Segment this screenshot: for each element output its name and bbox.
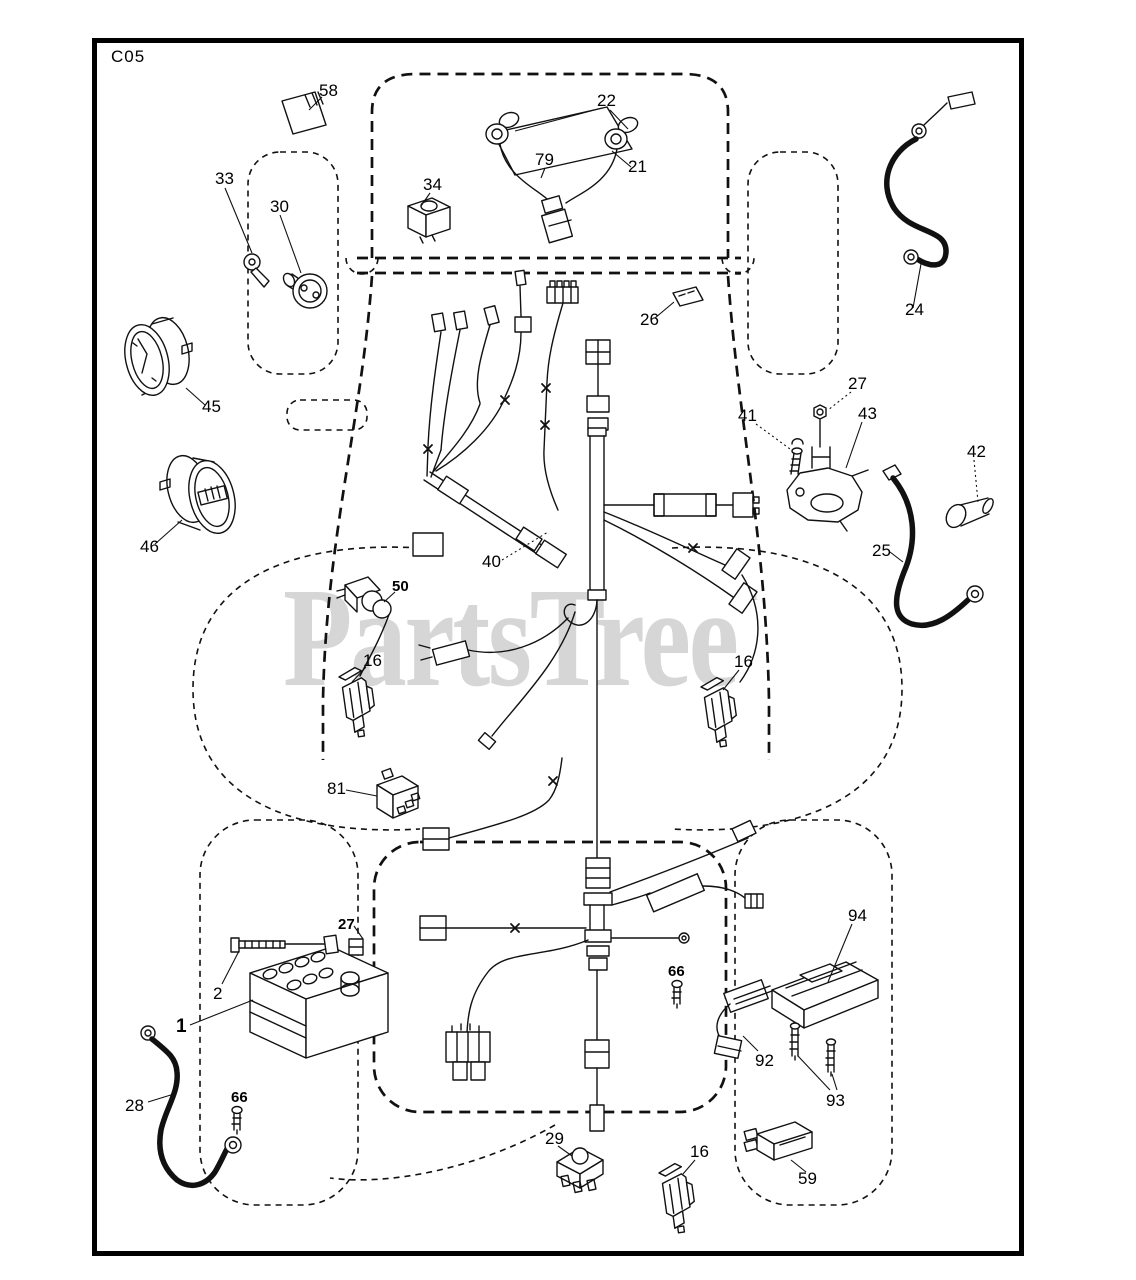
callout-45[interactable]: 45 [202, 397, 221, 416]
headlight-harness [486, 107, 640, 243]
wheel-arc-left [346, 258, 378, 274]
battery-cable-25 [883, 465, 983, 625]
callout-16-right[interactable]: 16 [734, 652, 753, 671]
relay-81 [377, 769, 420, 818]
callout-1[interactable]: 1 [176, 1016, 187, 1037]
interlock-switch-right [700, 676, 740, 749]
callout-16-left[interactable]: 16 [363, 651, 382, 670]
callout-21[interactable]: 21 [628, 157, 647, 176]
interlock-switch-bottom [658, 1162, 698, 1235]
ignition-switch [281, 271, 327, 308]
callout-41[interactable]: 41 [738, 406, 757, 425]
interlock-switch-left [338, 666, 378, 739]
light-switch [408, 198, 450, 243]
screw-66-right [672, 981, 682, 1009]
fuse [673, 287, 703, 306]
screw-66-left [232, 1107, 242, 1135]
mounting-screw-41 [790, 439, 803, 474]
solenoid-nut [814, 405, 826, 447]
callout-26[interactable]: 26 [640, 310, 659, 329]
callout-92[interactable]: 92 [755, 1051, 774, 1070]
seat-to-rear-curve [330, 1125, 555, 1180]
callout-24[interactable]: 24 [905, 300, 924, 319]
callout-46[interactable]: 46 [140, 537, 159, 556]
left-console-outline [248, 152, 338, 374]
callout-66-right[interactable]: 66 [668, 963, 685, 980]
callout-93[interactable]: 93 [826, 1091, 845, 1110]
terminal-boot [942, 497, 995, 531]
callout-43[interactable]: 43 [858, 404, 877, 423]
connector-92 [714, 980, 772, 1059]
battery [250, 947, 388, 1058]
callout-50[interactable]: 50 [392, 578, 409, 595]
hour-meter-gauge [160, 451, 242, 538]
ammeter-gauge [118, 313, 196, 400]
callout-42[interactable]: 42 [967, 442, 986, 461]
callout-66-left[interactable]: 66 [231, 1089, 248, 1106]
callout-59[interactable]: 59 [798, 1169, 817, 1188]
brake-switch [337, 577, 391, 618]
callout-29[interactable]: 29 [545, 1129, 564, 1148]
module-94 [772, 962, 878, 1028]
seat-switch [557, 1148, 603, 1193]
callout-16-bottom[interactable]: 16 [690, 1142, 709, 1161]
callout-2[interactable]: 2 [213, 984, 222, 1003]
relay-module-59 [744, 1122, 812, 1160]
callout-33[interactable]: 33 [215, 169, 234, 188]
diagram-art: 58 22 79 21 33 30 34 26 24 45 27 41 43 4… [0, 0, 1136, 1280]
callout-79[interactable]: 79 [535, 150, 554, 169]
callout-25[interactable]: 25 [872, 541, 891, 560]
callout-30[interactable]: 30 [270, 197, 289, 216]
callout-22[interactable]: 22 [597, 91, 616, 110]
callout-40[interactable]: 40 [482, 552, 501, 571]
battery-cable-24 [887, 92, 975, 265]
callout-34[interactable]: 34 [423, 175, 442, 194]
ground-cable-28 [141, 1026, 241, 1185]
main-harness-upper [360, 270, 759, 858]
callout-58[interactable]: 58 [319, 81, 338, 100]
callout-94[interactable]: 94 [848, 906, 867, 925]
right-console-outline [748, 152, 838, 374]
wheel-arc-right [722, 258, 754, 274]
callout-81[interactable]: 81 [327, 779, 346, 798]
callout-28[interactable]: 28 [125, 1096, 144, 1115]
main-harness-lower [420, 758, 763, 1131]
callout-27-solenoid[interactable]: 27 [848, 374, 867, 393]
parts-diagram-page: C05 PartsTree™ [0, 0, 1136, 1280]
screws-93 [790, 1023, 836, 1076]
callout-27-battery[interactable]: 27 [338, 916, 355, 933]
